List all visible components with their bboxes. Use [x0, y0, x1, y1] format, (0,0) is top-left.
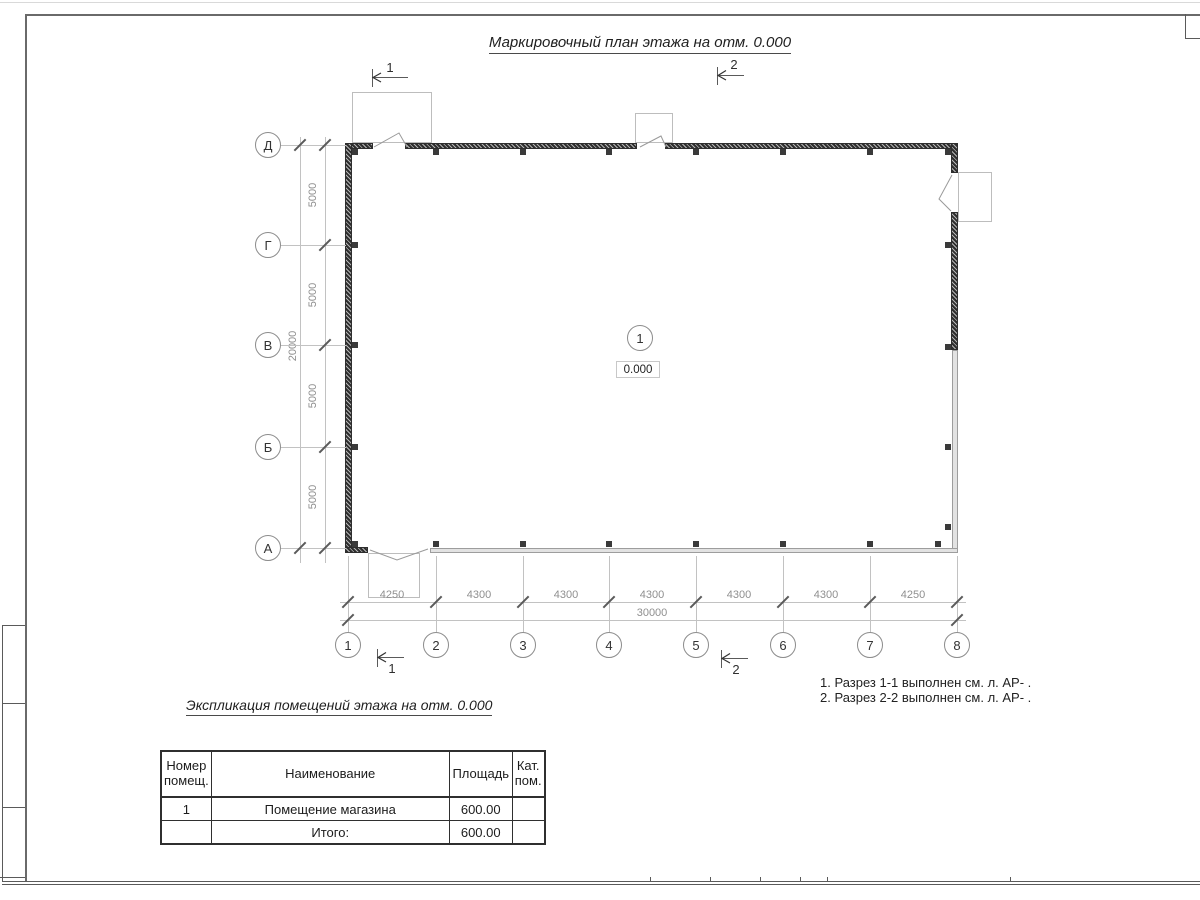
wall-bottom-light-segment — [430, 548, 958, 553]
column-marker — [520, 149, 526, 155]
table-cell-category — [512, 797, 544, 821]
column-marker — [352, 444, 358, 450]
dim-line-vertical-total — [300, 137, 301, 563]
wall-right-segment — [951, 212, 958, 350]
corner-box-edge — [1185, 14, 1186, 38]
title-block-stub-line — [710, 877, 711, 881]
table-cell-category — [512, 821, 544, 845]
paper-edge-line — [0, 2, 1200, 3]
title-block-stub-line — [1010, 877, 1011, 881]
axis-col-bubble: 5 — [683, 632, 709, 658]
column-marker — [352, 149, 358, 155]
axis-col-label: 4 — [605, 638, 612, 653]
section-mark-label: 1 — [383, 661, 401, 676]
column-marker — [606, 149, 612, 155]
plan-title-text: Маркировочный план этажа на отм. 0.000 — [489, 34, 791, 54]
axis-leader-line — [281, 447, 346, 448]
axis-col-bubble: 8 — [944, 632, 970, 658]
title-block-stub-line — [760, 877, 761, 881]
column-marker — [935, 541, 941, 547]
corner-box-edge — [1185, 38, 1200, 39]
column-marker — [780, 149, 786, 155]
section-mark-line — [372, 77, 408, 78]
axis-row-bubble: Г — [255, 232, 281, 258]
room-number-bubble: 1 — [627, 325, 653, 351]
table-cell-number: 1 — [161, 797, 211, 821]
column-marker — [433, 149, 439, 155]
column-marker — [606, 541, 612, 547]
axis-leader-line — [281, 145, 346, 146]
margin-box-edge — [2, 625, 3, 881]
margin-box-line — [2, 807, 25, 808]
axis-col-label: 3 — [519, 638, 526, 653]
column-marker — [867, 541, 873, 547]
table-header-row: Номер помещ. Наименование Площадь Кат. п… — [161, 751, 545, 797]
column-marker — [352, 342, 358, 348]
elevation-mark: 0.000 — [616, 361, 660, 378]
plan-title: Маркировочный план этажа на отм. 0.000 — [420, 34, 860, 54]
section-mark-line — [717, 67, 718, 85]
axis-leader-line — [870, 556, 871, 632]
frame-border-bottom — [2, 881, 1200, 882]
table-row-total: Итого: 600.00 — [161, 821, 545, 845]
column-marker — [945, 524, 951, 530]
schedule-title-text: Экспликация помещений этажа на отм. 0.00… — [186, 697, 492, 716]
axis-row-bubble: А — [255, 535, 281, 561]
axis-row-label: В — [264, 338, 273, 353]
axis-row-label: Д — [264, 138, 273, 153]
section-mark-label: 2 — [727, 662, 745, 677]
axis-leader-line — [523, 556, 524, 632]
section-mark-line — [377, 649, 378, 667]
floor-plan-canvas: Маркировочный план этажа на отм. 0.000 Д… — [0, 0, 1200, 900]
dim-label-horizontal: 4300 — [449, 589, 509, 601]
dim-label-vertical-total: 20000 — [287, 322, 299, 370]
title-block-stub-line — [827, 877, 828, 881]
dim-label-horizontal-total: 30000 — [622, 607, 682, 619]
axis-row-bubble: Д — [255, 132, 281, 158]
table-cell-total-label: Итого: — [211, 821, 449, 845]
table-cell-area: 600.00 — [449, 797, 512, 821]
wall-right-light-segment — [952, 350, 958, 553]
axis-col-label: 6 — [779, 638, 786, 653]
room-number: 1 — [636, 331, 643, 346]
table-header-cell: Площадь — [449, 751, 512, 797]
axis-row-bubble: Б — [255, 434, 281, 460]
dim-label-vertical: 5000 — [307, 374, 319, 418]
dim-label-horizontal: 4250 — [883, 589, 943, 601]
wall-top-segment — [665, 143, 958, 149]
dim-line-vertical-segments — [325, 137, 326, 563]
section-mark-line — [372, 69, 373, 87]
table-header-cell: Кат. пом. — [512, 751, 544, 797]
section-mark-line — [721, 650, 722, 668]
section-mark-line — [717, 75, 744, 76]
schedule-title: Экспликация помещений этажа на отм. 0.00… — [186, 697, 546, 716]
dim-line-horizontal-total — [340, 620, 966, 621]
section-mark-line — [377, 657, 404, 658]
margin-box-line — [0, 877, 25, 878]
column-marker — [693, 149, 699, 155]
table-cell-area: 600.00 — [449, 821, 512, 845]
dim-label-horizontal: 4250 — [362, 589, 422, 601]
frame-border-left — [25, 14, 27, 882]
margin-box-line — [2, 625, 25, 626]
axis-leader-line — [783, 556, 784, 632]
axis-row-label: Г — [264, 238, 271, 253]
column-marker — [433, 541, 439, 547]
table-cell-name: Помещение магазина — [211, 797, 449, 821]
axis-leader-line — [281, 345, 346, 346]
axis-leader-line — [609, 556, 610, 632]
axis-col-bubble: 2 — [423, 632, 449, 658]
title-block-stub-line — [650, 877, 651, 881]
column-marker — [352, 242, 358, 248]
entrance-porch-top-middle — [635, 113, 673, 143]
dim-label-vertical: 5000 — [307, 273, 319, 317]
section-mark-label: 2 — [725, 57, 743, 72]
title-block-top-line — [2, 884, 1200, 885]
section-mark-label: 1 — [381, 60, 399, 75]
column-marker — [867, 149, 873, 155]
note-line: 1. Разрез 1-1 выполнен см. л. АР- . — [820, 675, 1031, 690]
axis-row-bubble: В — [255, 332, 281, 358]
axis-col-label: 8 — [953, 638, 960, 653]
door-swing-line — [939, 175, 952, 211]
axis-leader-line — [696, 556, 697, 632]
wall-right-segment — [951, 143, 958, 173]
drawing-notes: 1. Разрез 1-1 выполнен см. л. АР- . 2. Р… — [820, 675, 1031, 705]
dim-label-vertical: 5000 — [307, 173, 319, 217]
entrance-vestibule-top-left — [352, 92, 432, 143]
axis-col-label: 7 — [866, 638, 873, 653]
column-marker — [945, 149, 951, 155]
dim-label-vertical: 5000 — [307, 475, 319, 519]
section-mark-line — [721, 658, 748, 659]
axis-col-label: 1 — [344, 638, 351, 653]
axis-col-label: 2 — [432, 638, 439, 653]
dim-label-horizontal: 4300 — [709, 589, 769, 601]
note-line: 2. Разрез 2-2 выполнен см. л. АР- . — [820, 690, 1031, 705]
axis-col-bubble: 1 — [335, 632, 361, 658]
wall-bottom-segment — [345, 547, 368, 553]
frame-border-top — [25, 14, 1200, 16]
table-row: 1 Помещение магазина 600.00 — [161, 797, 545, 821]
dim-label-horizontal: 4300 — [536, 589, 596, 601]
title-block-stub-line — [800, 877, 801, 881]
dim-label-horizontal: 4300 — [622, 589, 682, 601]
column-marker — [693, 541, 699, 547]
column-marker — [945, 444, 951, 450]
axis-col-bubble: 6 — [770, 632, 796, 658]
axis-leader-line — [436, 556, 437, 632]
dim-label-horizontal: 4300 — [796, 589, 856, 601]
column-marker — [352, 541, 358, 547]
wall-left — [345, 143, 352, 553]
axis-col-bubble: 7 — [857, 632, 883, 658]
axis-row-label: Б — [264, 440, 273, 455]
column-marker — [780, 541, 786, 547]
table-header-cell: Номер помещ. — [161, 751, 211, 797]
axis-leader-line — [281, 548, 346, 549]
column-marker — [945, 344, 951, 350]
axis-row-label: А — [264, 541, 273, 556]
room-schedule-table: Номер помещ. Наименование Площадь Кат. п… — [160, 750, 546, 845]
drawing-sheet: Маркировочный план этажа на отм. 0.000 Д… — [0, 0, 1200, 900]
column-marker — [945, 242, 951, 248]
table-header-cell: Наименование — [211, 751, 449, 797]
axis-col-bubble: 3 — [510, 632, 536, 658]
column-marker — [520, 541, 526, 547]
axis-col-label: 5 — [692, 638, 699, 653]
margin-box-line — [2, 703, 25, 704]
axis-col-bubble: 4 — [596, 632, 622, 658]
table-cell-number — [161, 821, 211, 845]
entrance-porch-right — [958, 172, 992, 222]
axis-leader-line — [281, 245, 346, 246]
